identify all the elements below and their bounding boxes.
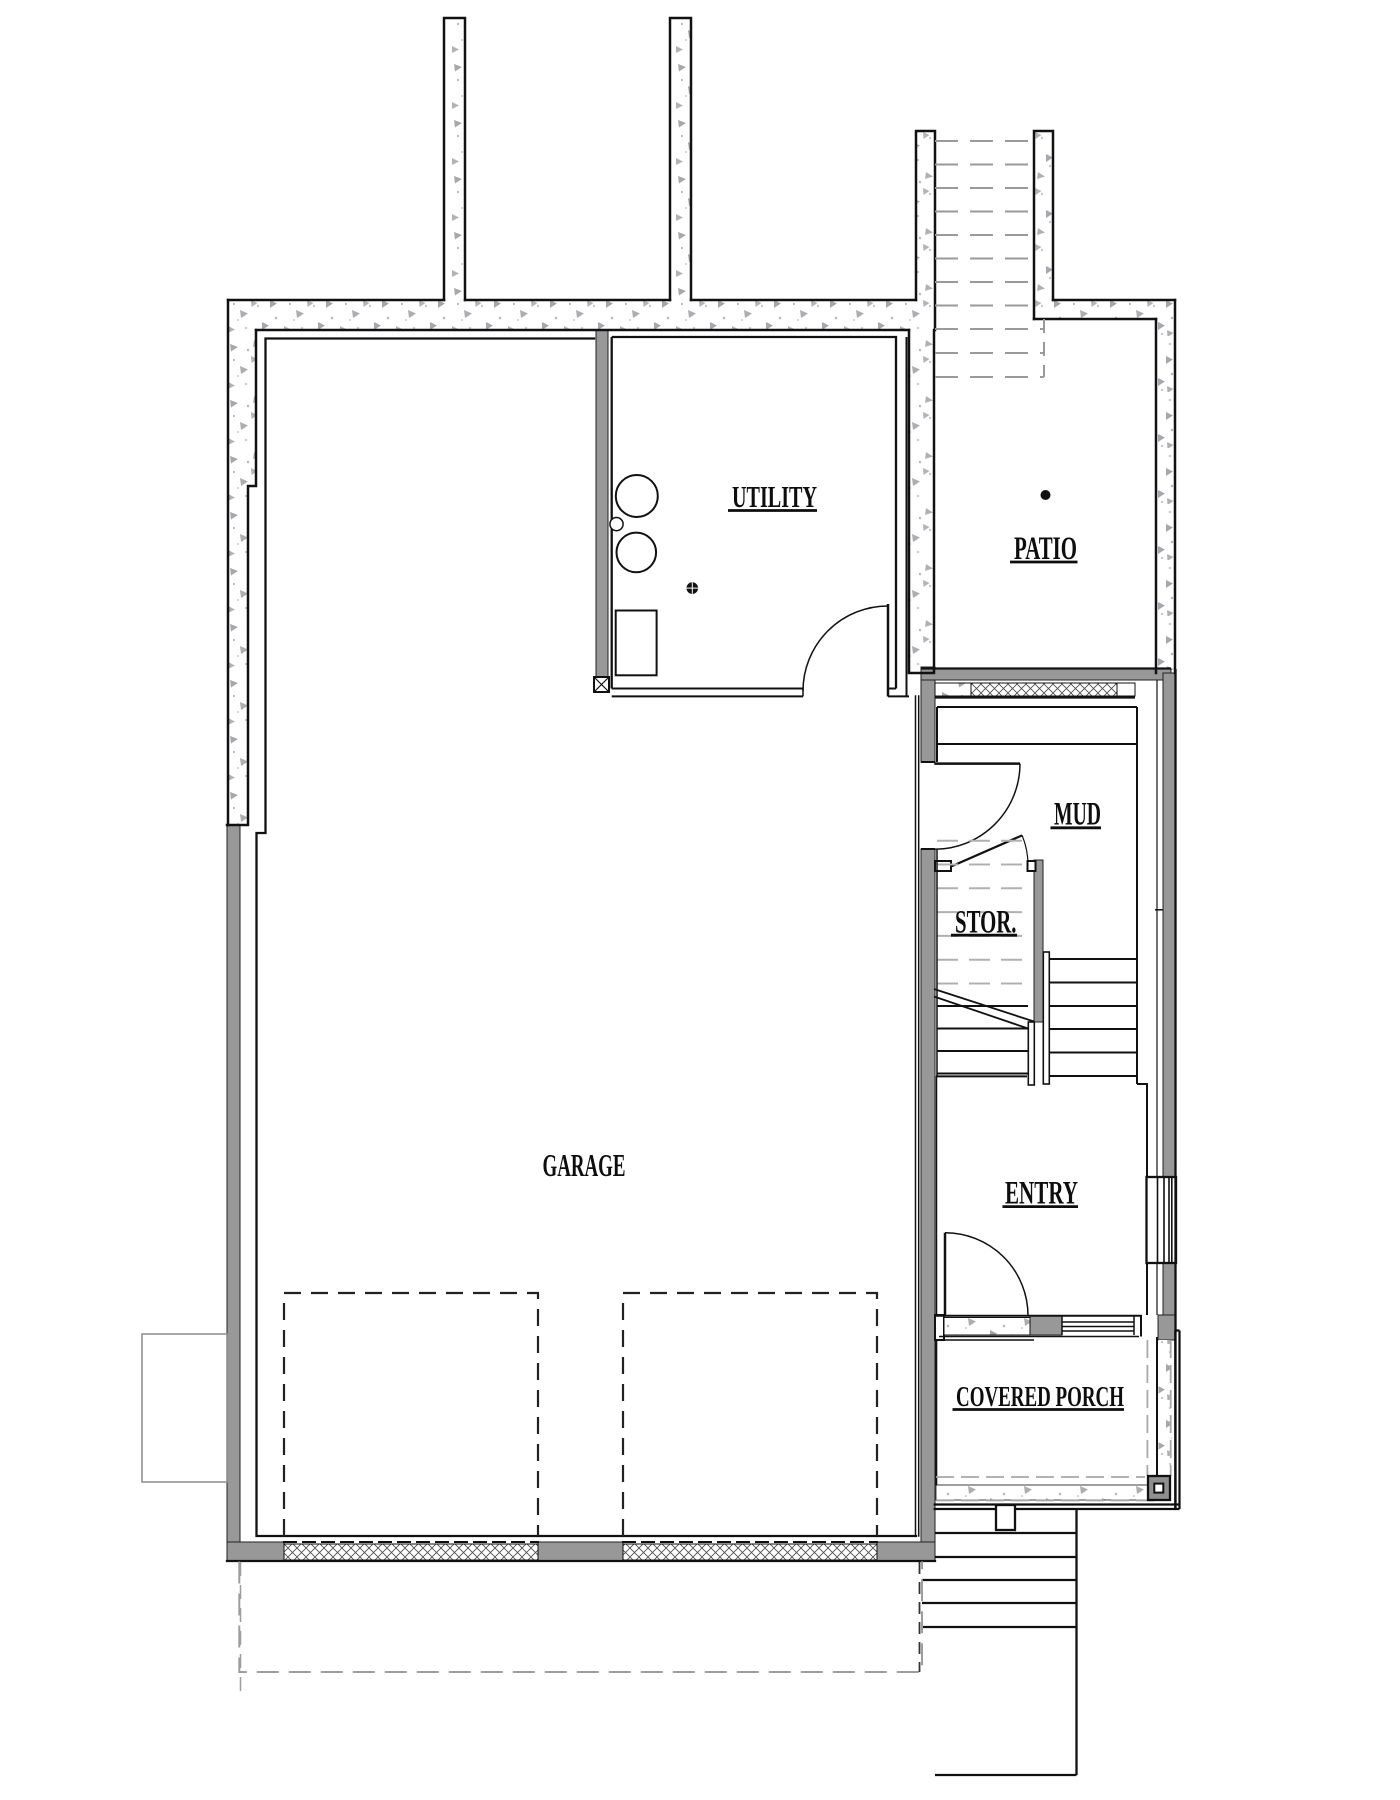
svg-text:UTILITY: UTILITY — [732, 479, 817, 514]
svg-text:GARAGE: GARAGE — [543, 1147, 626, 1183]
